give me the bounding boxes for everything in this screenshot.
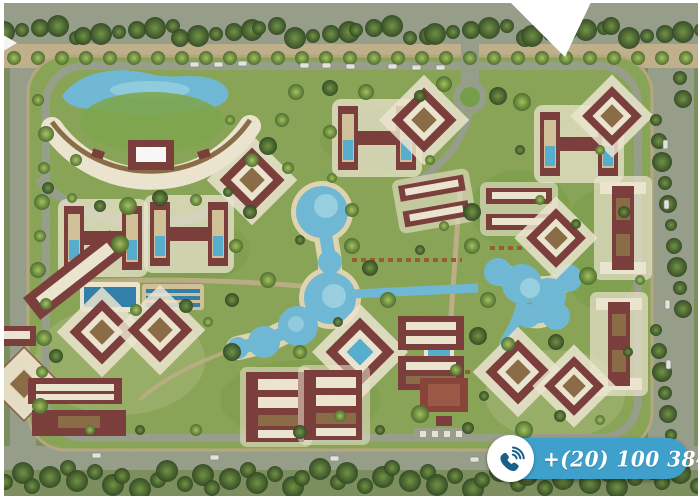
- master-plan-image: +(20) 100 384 7187: [0, 0, 700, 500]
- phone-number: +(20) 100 384 7187: [543, 446, 700, 471]
- texture-overlay: [0, 0, 700, 500]
- phone-icon: [487, 435, 534, 482]
- phone-badge[interactable]: +(20) 100 384 7187: [489, 438, 688, 479]
- master-plan-rendering: [0, 0, 700, 500]
